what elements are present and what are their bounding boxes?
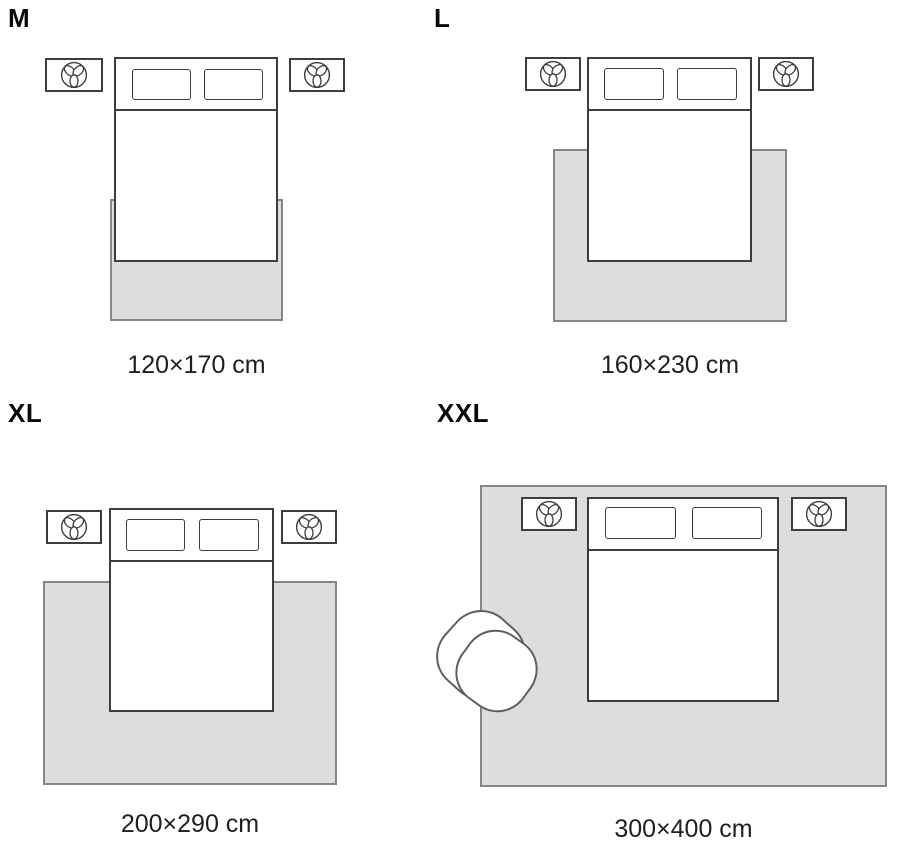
trefoil-plant-icon xyxy=(805,500,833,528)
size-label: L xyxy=(434,3,450,33)
nightstand-left xyxy=(45,58,103,92)
trefoil-plant-icon xyxy=(535,500,563,528)
trefoil-plant-icon xyxy=(539,60,567,88)
bed xyxy=(109,508,274,712)
bed xyxy=(114,57,278,262)
nightstand-right xyxy=(289,58,345,92)
nightstand-left xyxy=(525,57,581,91)
rug-size-guide: M 120×170 cm L 160×230 cm xyxy=(0,0,900,850)
dimension-label: 200×290 cm xyxy=(43,811,337,837)
pillow-left xyxy=(126,519,185,551)
pillow-left xyxy=(605,507,676,539)
bed xyxy=(587,57,752,262)
pillow-right xyxy=(199,519,259,551)
nightstand-right xyxy=(758,57,814,91)
trefoil-plant-icon xyxy=(295,513,323,541)
dimension-label: 120×170 cm xyxy=(110,352,283,378)
trefoil-plant-icon xyxy=(60,513,88,541)
size-label: XXL xyxy=(437,398,489,428)
panel-m: M 120×170 cm xyxy=(0,0,450,390)
panel-xxl: XXL 300×400 cm xyxy=(450,390,900,850)
nightstand-right xyxy=(281,510,337,544)
pillow-right xyxy=(204,69,263,100)
trefoil-plant-icon xyxy=(772,60,800,88)
size-label: XL xyxy=(8,398,42,428)
dimension-label: 160×230 cm xyxy=(553,352,787,378)
headboard-line xyxy=(111,560,272,562)
headboard-line xyxy=(589,109,750,111)
pillow-right xyxy=(692,507,762,539)
panel-xl: XL 200×290 cm xyxy=(0,390,450,850)
trefoil-plant-icon xyxy=(303,61,331,89)
dimension-label: 300×400 cm xyxy=(480,816,887,842)
trefoil-plant-icon xyxy=(60,61,88,89)
pillow-right xyxy=(677,68,737,100)
headboard-line xyxy=(589,549,777,551)
bed xyxy=(587,497,779,702)
size-label: M xyxy=(8,3,30,33)
pillow-left xyxy=(132,69,191,100)
headboard-line xyxy=(116,109,276,111)
pillow-left xyxy=(604,68,664,100)
nightstand-right xyxy=(791,497,847,531)
nightstand-left xyxy=(521,497,577,531)
nightstand-left xyxy=(46,510,102,544)
panel-l: L 160×230 cm xyxy=(450,0,900,390)
